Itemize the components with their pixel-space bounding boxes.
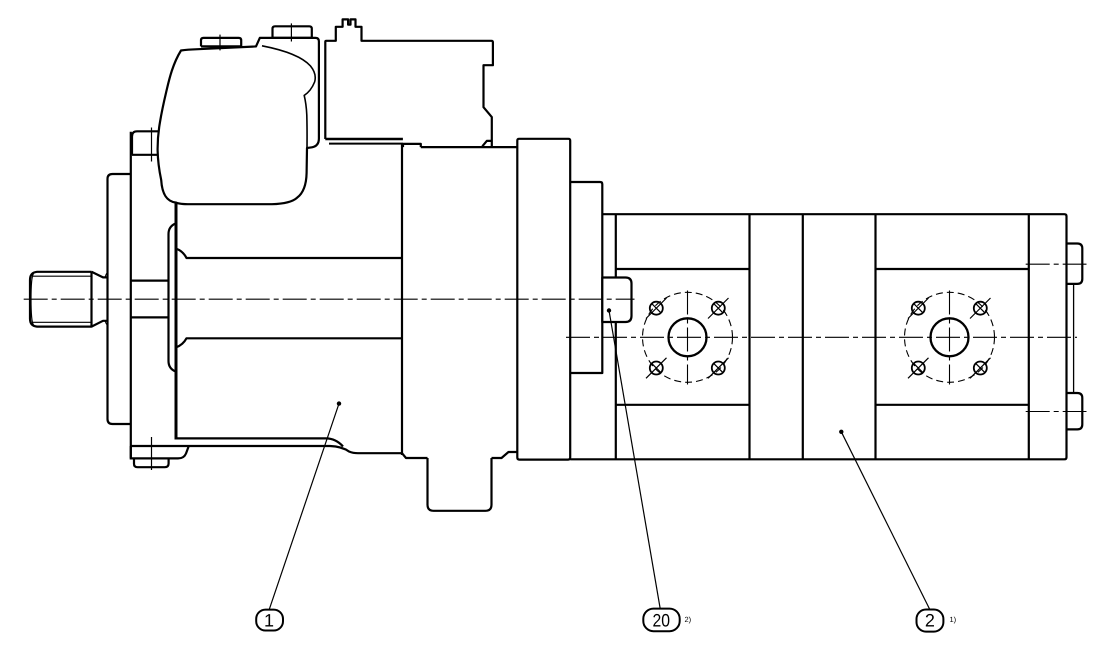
svg-text:2): 2) [685, 615, 692, 624]
svg-text:2: 2 [925, 611, 935, 631]
svg-text:20: 20 [653, 611, 671, 631]
svg-text:1: 1 [264, 610, 274, 630]
svg-text:1): 1) [950, 615, 957, 624]
